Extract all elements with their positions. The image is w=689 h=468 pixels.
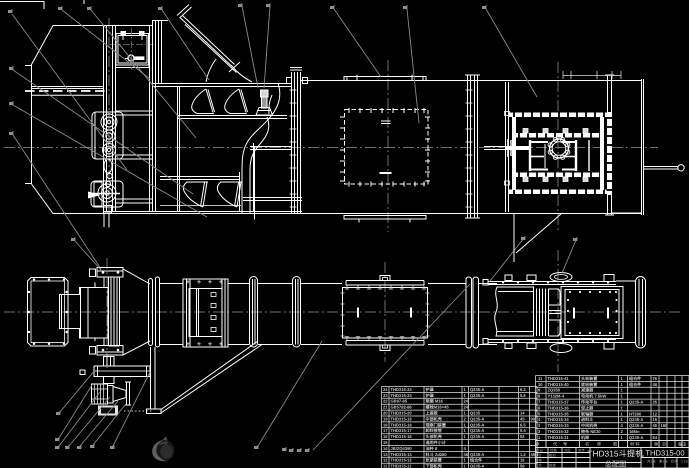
svg-text:Q235-A: Q235-A xyxy=(629,400,643,405)
svg-text:10: 10 xyxy=(538,382,543,387)
svg-text:180: 180 xyxy=(661,423,669,428)
svg-text:Q235-A: Q235-A xyxy=(470,452,484,457)
svg-text:签字: 签字 xyxy=(578,448,585,452)
svg-text:号: 号 xyxy=(563,442,567,447)
svg-text:Q235-A: Q235-A xyxy=(470,464,484,468)
svg-text:90: 90 xyxy=(531,416,536,421)
svg-text:HT200: HT200 xyxy=(629,411,642,416)
svg-text:1:10: 1:10 xyxy=(681,460,688,464)
svg-text:THD315-16: THD315-16 xyxy=(391,434,413,439)
svg-text:1.2: 1.2 xyxy=(520,452,526,457)
svg-text:垫圈 M16: 垫圈 M16 xyxy=(426,399,444,404)
svg-text:链条 NE30: 链条 NE30 xyxy=(581,429,601,434)
svg-text:张紧装置: 张紧装置 xyxy=(426,458,442,463)
svg-text:THD315-18: THD315-18 xyxy=(391,422,413,427)
svg-text:Q235-A: Q235-A xyxy=(470,428,484,433)
svg-text:批准: 批准 xyxy=(549,463,556,467)
svg-text:料斗 Zd280: 料斗 Zd280 xyxy=(426,452,448,457)
svg-text:总配图: 总配图 xyxy=(605,460,627,468)
svg-text:THD315-35: THD315-35 xyxy=(548,411,570,416)
svg-text:第1张: 第1张 xyxy=(659,460,668,464)
svg-text:12: 12 xyxy=(653,411,658,416)
svg-text:THD315-13: THD315-13 xyxy=(391,452,413,457)
svg-text:12: 12 xyxy=(383,458,388,463)
svg-text:35: 35 xyxy=(653,400,658,405)
svg-text:共1张: 共1张 xyxy=(647,460,656,464)
svg-text:11: 11 xyxy=(538,376,543,381)
svg-text:19: 19 xyxy=(383,416,388,421)
svg-text:64: 64 xyxy=(653,435,658,440)
svg-text:Q235: Q235 xyxy=(470,411,481,416)
svg-text:THD315-00: THD315-00 xyxy=(645,449,684,458)
svg-text:22: 22 xyxy=(383,399,388,404)
svg-text:17: 17 xyxy=(383,428,388,433)
svg-text:组合件: 组合件 xyxy=(629,376,641,381)
svg-text:下部机壳: 下部机壳 xyxy=(426,464,443,468)
svg-text:材 料: 材 料 xyxy=(630,442,640,447)
svg-text:76: 76 xyxy=(653,376,658,381)
svg-text:23: 23 xyxy=(383,393,388,398)
svg-text:通用件小计: 通用件小计 xyxy=(426,440,447,445)
svg-text:组合件: 组合件 xyxy=(629,382,641,387)
svg-text:Q235-A: Q235-A xyxy=(470,393,484,398)
svg-text:THD315-40: THD315-40 xyxy=(548,382,570,387)
svg-text:THD315斗提机: THD315斗提机 xyxy=(587,449,644,459)
svg-text:观察门装置: 观察门装置 xyxy=(426,422,446,427)
svg-text:THD315-41: THD315-41 xyxy=(548,376,570,381)
svg-text:联轴器: 联轴器 xyxy=(581,411,594,416)
svg-text:头部机壳: 头部机壳 xyxy=(426,434,443,439)
svg-text:比例: 比例 xyxy=(671,460,678,464)
svg-text:中部机壳: 中部机壳 xyxy=(426,416,443,421)
svg-text:24: 24 xyxy=(464,405,469,410)
svg-text:序: 序 xyxy=(536,442,540,447)
svg-text:Y132M-4: Y132M-4 xyxy=(548,394,565,399)
svg-text:设计: 设计 xyxy=(535,453,542,457)
svg-text:THD315-24: THD315-24 xyxy=(391,387,413,392)
svg-text:螺栓M16×45: 螺栓M16×45 xyxy=(426,405,450,410)
svg-text:上盖板: 上盖板 xyxy=(426,411,439,416)
svg-text:减速器: 减速器 xyxy=(581,388,594,393)
svg-text:进料斗: 进料斗 xyxy=(581,417,593,422)
svg-text:21: 21 xyxy=(383,405,388,410)
svg-text:THD315-32: THD315-32 xyxy=(548,429,570,434)
svg-text:Q235-A: Q235-A xyxy=(470,416,484,421)
svg-text:45: 45 xyxy=(520,416,525,421)
svg-text:校对: 校对 xyxy=(549,453,556,457)
svg-text:38: 38 xyxy=(464,452,469,457)
svg-text:THD315-23: THD315-23 xyxy=(391,393,413,398)
svg-text:电动机 7.5kW: 电动机 7.5kW xyxy=(581,394,606,399)
svg-text:传动平台: 传动平台 xyxy=(580,400,597,405)
svg-text:中间机壳: 中间机壳 xyxy=(581,423,598,428)
svg-text:THD315-31: THD315-31 xyxy=(548,435,570,440)
svg-text:护罩: 护罩 xyxy=(426,393,434,398)
svg-text:JB/ZQ4390: JB/ZQ4390 xyxy=(391,446,413,451)
svg-text:11: 11 xyxy=(383,464,388,468)
svg-text:处数: 处数 xyxy=(550,448,557,452)
svg-text:THD315-37: THD315-37 xyxy=(548,400,570,405)
svg-text:名: 名 xyxy=(585,442,589,447)
svg-text:16: 16 xyxy=(383,434,388,439)
svg-text:13: 13 xyxy=(383,452,388,457)
svg-text:45: 45 xyxy=(653,423,658,428)
svg-text:18: 18 xyxy=(520,458,525,463)
svg-text:15: 15 xyxy=(653,417,658,422)
svg-text:Q235-A: Q235-A xyxy=(629,417,643,422)
svg-text:6.2: 6.2 xyxy=(520,387,526,392)
svg-text:THD315-20: THD315-20 xyxy=(391,411,413,416)
svg-text:THD315-11: THD315-11 xyxy=(391,464,413,468)
svg-text:底轮装置: 底轮装置 xyxy=(581,382,597,387)
svg-text:工艺: 工艺 xyxy=(535,463,542,467)
svg-text:备注: 备注 xyxy=(678,442,687,447)
svg-text:组合件: 组合件 xyxy=(470,458,482,463)
svg-text:审核: 审核 xyxy=(535,458,542,462)
svg-text:THD315-33: THD315-33 xyxy=(548,423,570,428)
svg-text:机架: 机架 xyxy=(581,435,590,440)
svg-text:头轮装置: 头轮装置 xyxy=(581,376,597,381)
svg-text:15: 15 xyxy=(383,440,388,445)
svg-text:单: 单 xyxy=(654,442,658,447)
svg-text:Q235-A: Q235-A xyxy=(629,423,643,428)
svg-text:48: 48 xyxy=(653,382,658,387)
svg-text:9.4: 9.4 xyxy=(520,428,526,433)
svg-text:14: 14 xyxy=(383,446,388,451)
svg-text:GB97-85: GB97-85 xyxy=(391,399,408,404)
svg-text:Q235-A: Q235-A xyxy=(629,435,643,440)
svg-text:Q235-A: Q235-A xyxy=(470,434,484,439)
svg-text:THD315-19: THD315-19 xyxy=(391,416,413,421)
svg-text:THD315-34: THD315-34 xyxy=(548,417,570,422)
svg-text:THD315-36: THD315-36 xyxy=(548,405,570,410)
svg-text:20: 20 xyxy=(383,411,388,416)
svg-text:18: 18 xyxy=(383,422,388,427)
svg-text:16Mn: 16Mn xyxy=(629,429,640,434)
svg-text:油杯 8: 油杯 8 xyxy=(426,446,438,451)
svg-text:52: 52 xyxy=(520,434,525,439)
svg-text:THD315-12: THD315-12 xyxy=(391,458,413,463)
svg-text:卸料接管: 卸料接管 xyxy=(426,428,442,433)
svg-text:56: 56 xyxy=(520,464,525,468)
svg-text:护罩: 护罩 xyxy=(426,387,434,392)
svg-text:Q235-A: Q235-A xyxy=(470,387,484,392)
svg-text:GB5782-86: GB5782-86 xyxy=(391,405,413,410)
svg-text:6.5: 6.5 xyxy=(520,422,526,427)
svg-text:标记: 标记 xyxy=(536,448,543,452)
svg-text:分区: 分区 xyxy=(564,448,571,452)
svg-text:THD315-17: THD315-17 xyxy=(391,428,413,433)
svg-text:5.8: 5.8 xyxy=(520,393,526,398)
svg-text:24: 24 xyxy=(464,399,469,404)
svg-text:ZQ350: ZQ350 xyxy=(548,388,561,393)
svg-text:Q235-A: Q235-A xyxy=(470,422,484,427)
svg-text:24: 24 xyxy=(383,387,388,392)
svg-text:逆止器: 逆止器 xyxy=(581,405,594,410)
svg-text:14: 14 xyxy=(520,411,525,416)
